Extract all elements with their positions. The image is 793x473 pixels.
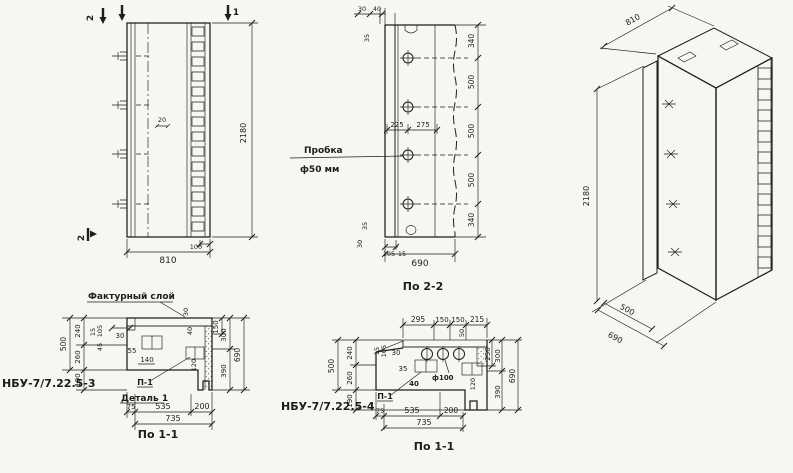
dim-225: 225 <box>390 121 403 129</box>
dim-390-b: 390 <box>494 385 502 398</box>
dim-300-a: 300 <box>220 328 228 341</box>
dim-2180: 2180 <box>239 123 248 143</box>
dim-40-tr: 40 <box>186 327 194 335</box>
dim-535-a: 535 <box>155 402 170 411</box>
dim-75-b: 75 <box>376 407 384 415</box>
dim-75-a: 75 <box>127 403 136 411</box>
key-recesses <box>192 27 204 231</box>
dim-500-c: 500 <box>467 173 476 188</box>
dim-240-b: 240 <box>346 346 354 359</box>
dim-300-b: 300 <box>494 349 502 362</box>
dim-105-b: 105 <box>380 345 388 357</box>
dim-140-a: 140 <box>140 356 153 364</box>
detail-ref-p1: П-1 <box>137 378 153 387</box>
plug-note-leader <box>290 156 403 158</box>
dim-215-b: 215 <box>470 315 485 324</box>
plan-b-caption: По 1-1 <box>414 440 454 453</box>
section-mark-2-top: 2 <box>86 8 107 24</box>
elevation-view: 20 2180 810 100 2 1 2 <box>77 5 258 266</box>
dim-275: 275 <box>416 121 429 129</box>
svg-text:1: 1 <box>233 8 239 18</box>
bottom-recess <box>406 226 416 235</box>
dim-260-b: 260 <box>346 371 354 384</box>
part-label-b: НБУ-7/7.22.5-4 <box>281 400 375 413</box>
facing-flange <box>643 61 657 280</box>
iso-dim-810-lines <box>600 6 714 54</box>
dim-390-a: 390 <box>220 364 228 377</box>
dim-30-tr: 30 <box>182 308 190 316</box>
side-face <box>716 58 772 300</box>
round-holes <box>422 346 465 362</box>
top-notch-2 <box>720 40 738 50</box>
blueprint-sheet: 20 2180 810 100 2 1 2 <box>0 0 793 473</box>
dim-150-b1: 150 <box>435 316 448 324</box>
dim-690: 690 <box>411 259 428 269</box>
dim-30-a: 30 <box>116 332 125 340</box>
dim-55-a: 55 <box>128 347 137 355</box>
section-2-2: 340 500 500 500 340 225 275 Пробка ф50 м… <box>290 5 486 293</box>
dim-500-b: 500 <box>467 124 476 139</box>
dim-50-b: 50 <box>458 329 466 337</box>
technical-drawing: 20 2180 810 100 2 1 2 <box>0 0 793 473</box>
dim-240-a: 240 <box>74 324 82 337</box>
dim-2180-lines <box>212 23 258 237</box>
dim-500-b: 500 <box>327 359 336 374</box>
facing-note: Фактурный слой <box>88 292 175 302</box>
facing-note-leader <box>87 302 185 317</box>
hook-dim-ticks <box>155 124 170 128</box>
dim-690-a: 690 <box>233 348 242 363</box>
top-notch <box>405 25 417 33</box>
facing-strip-b <box>403 340 487 347</box>
iso-dim-2180-lines <box>592 66 646 312</box>
dim-40-b: 40 <box>409 380 419 388</box>
iso-dim-810: 810 <box>624 12 642 27</box>
dim-120-b: 120 <box>469 378 477 390</box>
dim-690-b: 690 <box>508 369 517 384</box>
dim-200-a: 200 <box>194 402 209 411</box>
dim-295-b: 295 <box>411 315 426 324</box>
dim-35-bot: 35 <box>361 222 369 230</box>
dim-340-bottom: 340 <box>467 213 476 228</box>
lifting-hooks <box>112 52 127 208</box>
hook-dim-label: 20 <box>158 116 166 124</box>
dim-340-top: 340 <box>467 34 476 49</box>
hole-axis-dashes <box>416 58 468 204</box>
dim-535-b: 535 <box>404 406 419 415</box>
section-2-2-caption: По 2-2 <box>403 280 443 293</box>
keyed-edge <box>758 59 771 277</box>
keyed-strip-lines <box>187 23 205 237</box>
dim-500-a: 500 <box>59 337 68 352</box>
dim-500-a: 500 <box>467 75 476 90</box>
top-face <box>658 28 772 88</box>
facing-strip <box>127 318 212 326</box>
void-slots-b <box>415 360 482 375</box>
dim-35-b: 35 <box>399 365 408 373</box>
svg-text:2: 2 <box>86 15 96 21</box>
dim-190-a: 190 <box>74 373 82 386</box>
face-anchors <box>662 100 682 256</box>
dim-105-a: 105 <box>96 325 104 337</box>
dim-30-bot: 30 <box>356 240 364 248</box>
dim-735-a: 735 <box>165 414 180 423</box>
iso-dim-2180: 2180 <box>582 186 591 206</box>
dim-120-a: 120 <box>190 359 198 371</box>
dim-30-b: 30 <box>392 349 401 357</box>
dim-250-b: 250 <box>484 347 492 360</box>
dim-45-a: 45 <box>96 343 104 351</box>
dim-190-b: 190 <box>346 394 354 407</box>
iso-dim-500: 500 <box>618 302 636 317</box>
dim-200-b: 200 <box>444 406 459 415</box>
front-face <box>658 56 716 300</box>
iso-dim-690: 690 <box>606 330 624 345</box>
dim-150-a: 150 <box>212 320 220 333</box>
detail-ref-p1-b: П-1 <box>377 392 393 401</box>
dim-810: 810 <box>159 256 176 266</box>
plug-note-line2: ф50 мм <box>300 165 339 175</box>
section-mark-arrow-top <box>119 5 126 21</box>
inner-lines <box>395 25 435 237</box>
dim-260-a: 260 <box>74 350 82 363</box>
hole-dia-note: ф100 <box>432 374 454 382</box>
broken-edge <box>454 25 457 237</box>
dim-735-b: 735 <box>416 418 431 427</box>
dim-35-left: 35 <box>363 34 371 42</box>
section-mark-2-bottom: 2 <box>77 228 97 241</box>
dim-100: 100 <box>190 243 202 251</box>
plan-a-caption: По 1-1 <box>138 428 178 441</box>
dim-30-top: 30 <box>358 5 366 13</box>
panel-outline <box>127 23 210 237</box>
section-mark-1-top: 1 <box>225 5 240 21</box>
plan-section-a: Фактурный слой НБУ-7/7.22.5-3 П-1 Деталь… <box>2 292 250 441</box>
hole-note-leader <box>445 360 449 373</box>
plan-section-b: ф100 40 120 НБУ-7/7.22.5-4 П-1 295 150 1… <box>281 315 522 453</box>
dim-150-b2: 150 <box>451 316 464 324</box>
plug-note-line1: Пробка <box>304 145 343 156</box>
svg-text:2: 2 <box>77 235 87 241</box>
dim-40-top: 40 <box>373 5 381 13</box>
isometric-view: 810 2180 500 690 <box>582 5 772 349</box>
top-notch-1 <box>678 52 696 62</box>
facing-layer-lines <box>131 23 135 237</box>
